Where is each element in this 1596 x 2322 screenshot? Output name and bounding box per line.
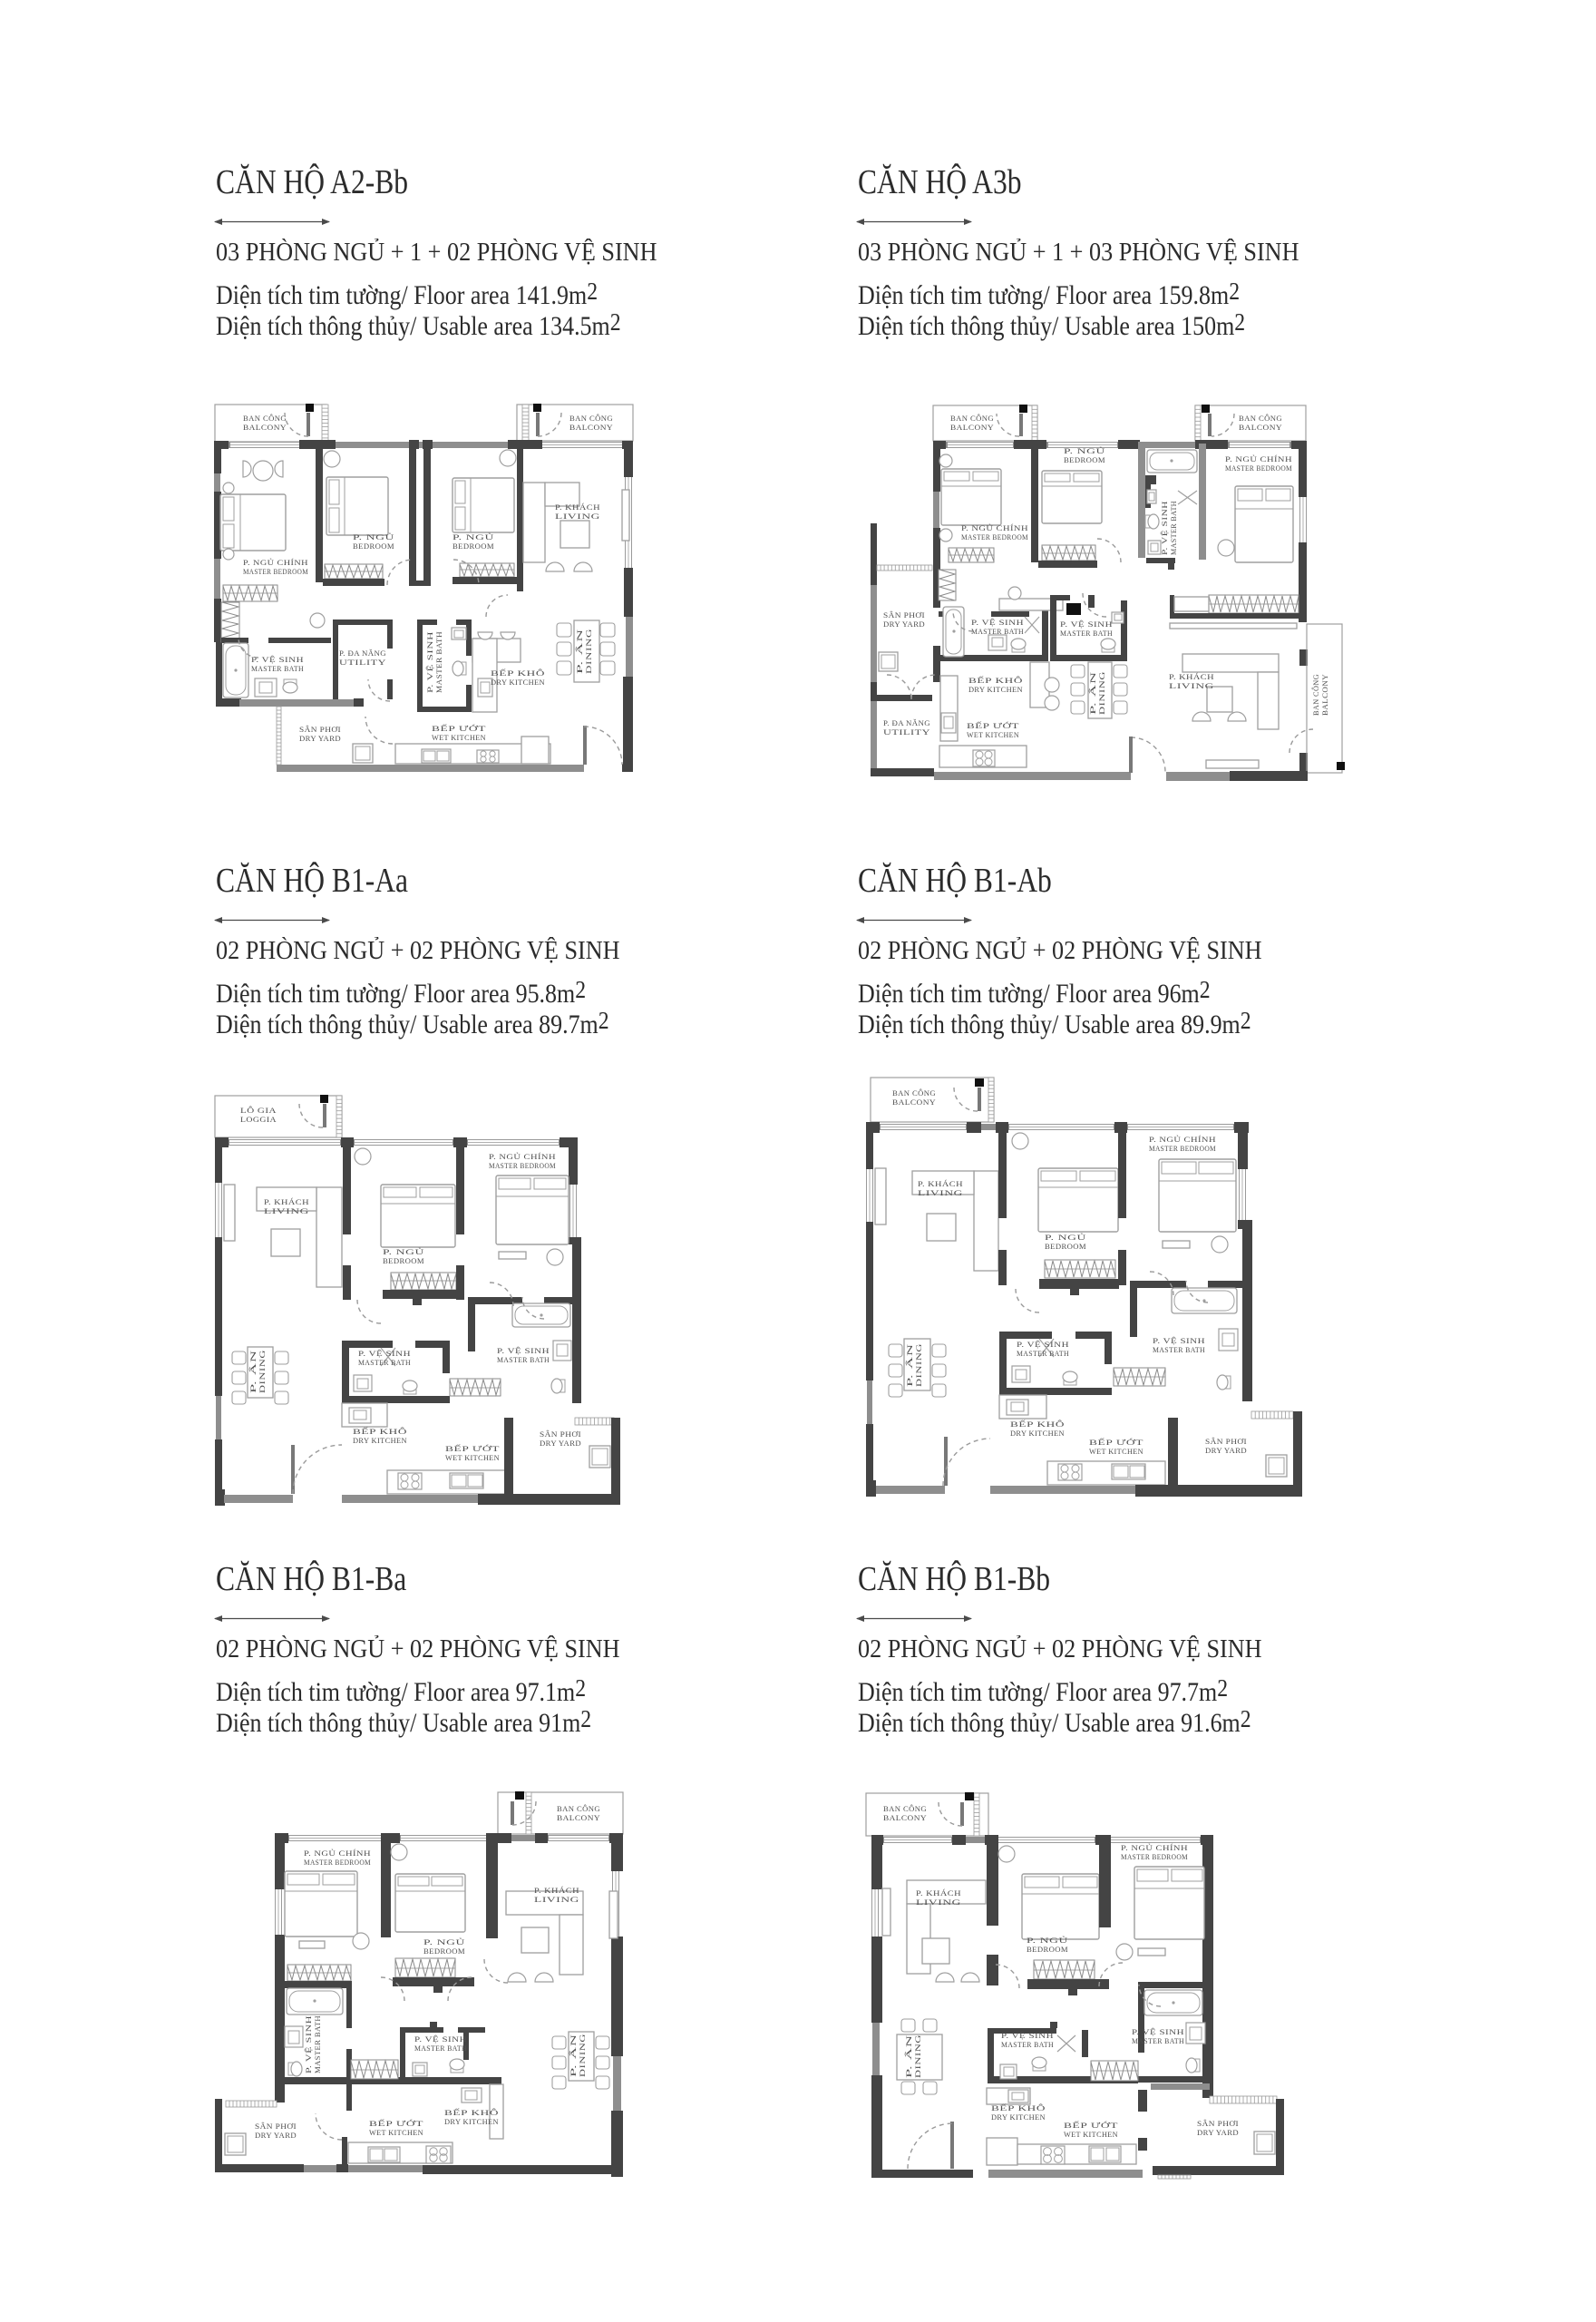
svg-text:BAN CÔNG: BAN CÔNG [557, 1804, 600, 1813]
svg-text:SÂN PHƠI: SÂN PHƠI [1197, 2119, 1239, 2128]
svg-text:BẾP ƯỚT: BẾP ƯỚT [432, 724, 486, 733]
svg-text:MASTER BEDROOM: MASTER BEDROOM [1225, 463, 1292, 473]
svg-text:BALCONY: BALCONY [569, 423, 613, 432]
svg-text:SÂN PHƠI: SÂN PHƠI [540, 1429, 581, 1439]
svg-text:BẾP KHÔ: BẾP KHÔ [444, 2108, 499, 2117]
svg-text:WET KITCHEN: WET KITCHEN [967, 730, 1019, 739]
svg-text:MASTER BEDROOM: MASTER BEDROOM [961, 532, 1028, 541]
svg-text:DRY KITCHEN: DRY KITCHEN [1010, 1429, 1065, 1438]
svg-text:MASTER BEDROOM: MASTER BEDROOM [1121, 1852, 1188, 1861]
svg-text:DRY KITCHEN: DRY KITCHEN [444, 2117, 499, 2126]
svg-text:BEDROOM: BEDROOM [1027, 1945, 1068, 1954]
svg-text:DINING: DINING [584, 629, 593, 674]
svg-text:P. VỆ SINH: P. VỆ SINH [1060, 620, 1113, 629]
svg-text:DRY KITCHEN: DRY KITCHEN [353, 1436, 407, 1445]
svg-text:P. VỆ SINH: P. VỆ SINH [251, 655, 304, 664]
svg-text:DRY YARD: DRY YARD [883, 620, 925, 629]
svg-text:P. NGỦ CHÍNH: P. NGỦ CHÍNH [243, 558, 308, 567]
svg-text:DRY KITCHEN: DRY KITCHEN [991, 2112, 1046, 2122]
svg-text:DRY KITCHEN: DRY KITCHEN [491, 678, 545, 687]
svg-text:BALCONY: BALCONY [892, 1098, 936, 1107]
svg-text:BẾP ƯỚT: BẾP ƯỚT [445, 1444, 500, 1453]
svg-text:BEDROOM: BEDROOM [353, 541, 394, 551]
svg-text:SÂN PHƠI: SÂN PHƠI [299, 725, 341, 734]
svg-text:P. VỆ SINH: P. VỆ SINH [1153, 1336, 1205, 1345]
svg-text:BAN CÔNG: BAN CÔNG [243, 414, 287, 423]
svg-text:DINING: DINING [913, 2034, 922, 2078]
svg-text:P. ÂN: P. ÂN [575, 628, 584, 674]
svg-text:BAN CÔNG: BAN CÔNG [1239, 414, 1282, 423]
svg-text:LIVING: LIVING [555, 512, 600, 521]
svg-text:BẾP KHÔ: BẾP KHÔ [491, 668, 545, 678]
svg-text:BEDROOM: BEDROOM [423, 1946, 465, 1956]
svg-text:P. NGỦ CHÍNH: P. NGỦ CHÍNH [1149, 1135, 1216, 1144]
svg-text:P. NGỦ: P. NGỦ [383, 1247, 424, 1256]
svg-text:LIVING: LIVING [1169, 681, 1214, 690]
svg-text:DRY KITCHEN: DRY KITCHEN [968, 685, 1023, 694]
svg-text:P. VỆ SINH: P. VỆ SINH [971, 618, 1024, 627]
svg-text:LIVING: LIVING [264, 1206, 309, 1215]
svg-text:WET KITCHEN: WET KITCHEN [369, 2128, 423, 2137]
svg-text:BALCONY: BALCONY [243, 423, 287, 432]
svg-text:MASTER BEDROOM: MASTER BEDROOM [304, 1858, 371, 1867]
svg-text:P. VỆ SINH: P. VỆ SINH [1160, 501, 1169, 555]
svg-text:MASTER BATH: MASTER BATH [971, 627, 1024, 636]
svg-text:P. NGỦ CHÍNH: P. NGỦ CHÍNH [1121, 1843, 1188, 1852]
svg-text:P. KHÁCH: P. KHÁCH [916, 1888, 961, 1898]
svg-text:DINING: DINING [578, 2034, 587, 2077]
svg-text:P. NGỦ: P. NGỦ [453, 532, 494, 541]
svg-text:DRY YARD: DRY YARD [299, 734, 341, 743]
svg-text:MASTER BATH: MASTER BATH [313, 2015, 322, 2073]
svg-text:P. KHÁCH: P. KHÁCH [1169, 672, 1214, 681]
svg-text:WET KITCHEN: WET KITCHEN [432, 733, 486, 742]
svg-text:DINING: DINING [914, 1343, 923, 1387]
svg-text:WET KITCHEN: WET KITCHEN [1064, 2130, 1118, 2139]
svg-text:UTILITY: UTILITY [883, 727, 930, 737]
svg-text:MASTER BATH: MASTER BATH [358, 1358, 411, 1367]
svg-text:P. NGỦ: P. NGỦ [1045, 1233, 1086, 1242]
svg-text:MASTER BATH: MASTER BATH [1153, 1345, 1205, 1354]
svg-text:MASTER BEDROOM: MASTER BEDROOM [489, 1161, 556, 1170]
svg-text:LÔ GIA: LÔ GIA [240, 1106, 277, 1115]
svg-text:BAN CÔNG: BAN CÔNG [1311, 674, 1320, 716]
svg-text:BEDROOM: BEDROOM [1064, 455, 1105, 464]
svg-text:BALCONY: BALCONY [557, 1813, 600, 1822]
svg-text:SÂN PHƠI: SÂN PHƠI [883, 610, 925, 620]
svg-text:LOGGIA: LOGGIA [240, 1115, 277, 1124]
svg-text:P. NGỦ: P. NGỦ [423, 1937, 465, 1946]
svg-text:BẾP KHÔ: BẾP KHÔ [1010, 1420, 1065, 1429]
svg-text:P. ÂN: P. ÂN [904, 2034, 913, 2078]
svg-text:WET KITCHEN: WET KITCHEN [445, 1453, 500, 1462]
svg-text:P. VỆ SINH: P. VỆ SINH [358, 1349, 411, 1358]
svg-text:P. ÂN: P. ÂN [248, 1350, 258, 1393]
svg-text:P. VỆ SINH: P. VỆ SINH [1017, 1340, 1069, 1349]
svg-text:MASTER BEDROOM: MASTER BEDROOM [243, 567, 308, 576]
svg-text:P. VỆ SINH: P. VỆ SINH [304, 2015, 313, 2073]
svg-text:P. VỆ SINH: P. VỆ SINH [414, 2034, 467, 2044]
svg-text:BALCONY: BALCONY [1320, 674, 1329, 716]
svg-text:DINING: DINING [1097, 671, 1106, 715]
svg-text:LIVING: LIVING [916, 1898, 961, 1907]
svg-text:BẾP ƯỚT: BẾP ƯỚT [369, 2119, 423, 2128]
svg-text:P. NGỦ CHÍNH: P. NGỦ CHÍNH [304, 1849, 371, 1858]
svg-text:P. ÂN: P. ÂN [905, 1343, 914, 1387]
svg-text:SÂN PHƠI: SÂN PHƠI [1205, 1437, 1247, 1446]
svg-text:MASTER BATH: MASTER BATH [434, 631, 443, 693]
svg-text:P. ÂN: P. ÂN [1088, 671, 1097, 715]
svg-text:BẾP KHÔ: BẾP KHÔ [968, 676, 1023, 685]
svg-text:MASTER BATH: MASTER BATH [1017, 1349, 1069, 1358]
svg-text:BEDROOM: BEDROOM [1045, 1242, 1086, 1251]
svg-text:P. NGỦ: P. NGỦ [1027, 1936, 1068, 1945]
svg-text:MASTER BATH: MASTER BATH [414, 2044, 467, 2053]
svg-text:MASTER BEDROOM: MASTER BEDROOM [1149, 1144, 1216, 1153]
svg-text:BẾP ƯỚT: BẾP ƯỚT [967, 721, 1019, 730]
svg-text:P. VỆ SINH: P. VỆ SINH [1001, 2031, 1054, 2040]
svg-text:P. ĐA NĂNG: P. ĐA NĂNG [883, 718, 930, 727]
svg-text:P. NGỦ: P. NGỦ [1064, 446, 1105, 455]
svg-text:P. NGỦ CHÍNH: P. NGỦ CHÍNH [1225, 454, 1292, 463]
svg-text:DRY YARD: DRY YARD [1197, 2128, 1239, 2137]
svg-text:BẾP ƯỚT: BẾP ƯỚT [1064, 2121, 1118, 2130]
svg-text:MASTER BATH: MASTER BATH [497, 1355, 550, 1364]
svg-text:MASTER BATH: MASTER BATH [1132, 2036, 1184, 2045]
svg-text:MASTER BATH: MASTER BATH [1001, 2040, 1054, 2049]
svg-text:BAN CÔNG: BAN CÔNG [569, 414, 613, 423]
svg-text:P. VỆ SINH: P. VỆ SINH [497, 1346, 550, 1355]
svg-text:SÂN PHƠI: SÂN PHƠI [255, 2122, 297, 2131]
svg-text:LIVING: LIVING [534, 1895, 579, 1904]
svg-text:BALCONY: BALCONY [883, 1813, 927, 1822]
svg-text:BEDROOM: BEDROOM [383, 1256, 424, 1265]
svg-text:DRY YARD: DRY YARD [1205, 1446, 1247, 1455]
svg-text:P. KHÁCH: P. KHÁCH [555, 502, 600, 512]
svg-text:MASTER BATH: MASTER BATH [1169, 501, 1178, 555]
svg-text:P. NGỦ CHÍNH: P. NGỦ CHÍNH [961, 523, 1028, 532]
svg-text:P. ĐA NĂNG: P. ĐA NĂNG [339, 649, 386, 658]
svg-text:P. KHÁCH: P. KHÁCH [264, 1197, 309, 1206]
svg-text:P. VỆ SINH: P. VỆ SINH [425, 631, 434, 693]
svg-text:P. KHÁCH: P. KHÁCH [534, 1886, 579, 1895]
svg-text:LIVING: LIVING [918, 1188, 963, 1197]
svg-text:MASTER BATH: MASTER BATH [1060, 629, 1113, 638]
svg-text:WET KITCHEN: WET KITCHEN [1089, 1447, 1143, 1456]
svg-text:P. NGỦ: P. NGỦ [353, 532, 394, 541]
svg-text:BAN CÔNG: BAN CÔNG [892, 1088, 936, 1098]
svg-text:P. NGỦ CHÍNH: P. NGỦ CHÍNH [489, 1152, 556, 1161]
svg-text:P. ÂN: P. ÂN [569, 2034, 578, 2077]
svg-text:DRY YARD: DRY YARD [540, 1439, 581, 1448]
svg-text:P. VỆ SINH: P. VỆ SINH [1132, 2027, 1184, 2036]
svg-text:BALCONY: BALCONY [950, 423, 994, 432]
svg-text:DRY YARD: DRY YARD [255, 2131, 297, 2140]
svg-text:DINING: DINING [258, 1350, 267, 1393]
svg-text:BAN CÔNG: BAN CÔNG [883, 1804, 927, 1813]
svg-text:BẾP KHÔ: BẾP KHÔ [353, 1427, 407, 1436]
svg-text:BAN CÔNG: BAN CÔNG [950, 414, 994, 423]
svg-text:BALCONY: BALCONY [1239, 423, 1282, 432]
svg-text:P. KHÁCH: P. KHÁCH [918, 1179, 963, 1188]
svg-text:BẾP ƯỚT: BẾP ƯỚT [1089, 1438, 1143, 1447]
svg-text:MASTER BATH: MASTER BATH [251, 664, 304, 673]
svg-text:UTILITY: UTILITY [339, 658, 386, 667]
svg-text:BẾP KHÔ: BẾP KHÔ [991, 2103, 1046, 2112]
svg-text:BEDROOM: BEDROOM [453, 541, 494, 551]
